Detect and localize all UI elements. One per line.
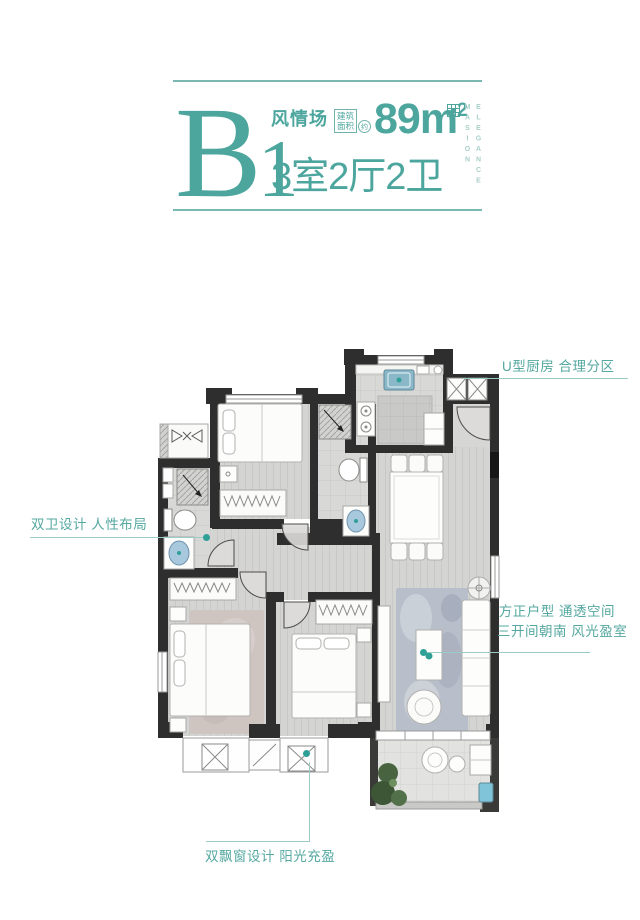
- toilet-1-tank: [164, 509, 172, 531]
- wall-bedroom1-bottom: [212, 519, 284, 529]
- plant: [391, 790, 407, 806]
- balcony-table: [449, 756, 465, 772]
- note-living-line2: 三开间朝南 风光盈室: [497, 622, 615, 642]
- note-bay-window: 双飘窗设计 阳光充盈: [205, 845, 335, 865]
- wall-bath2-left: [310, 404, 318, 519]
- annotation-hline-bay: [206, 841, 310, 842]
- wall-bath1-right: [210, 458, 220, 528]
- floor-plan: [0, 0, 640, 920]
- annotation-vline-bay: [309, 762, 310, 841]
- laundry-basin: [479, 783, 493, 802]
- dining-chair: [409, 543, 425, 560]
- note-bathroom: 双卫设计 人性布局: [31, 513, 147, 533]
- toilet-1: [174, 510, 196, 530]
- nightstand-master-1: [170, 607, 186, 621]
- dining-chair: [409, 455, 425, 472]
- nightstand-1: [220, 466, 237, 482]
- dining-chair: [427, 543, 443, 560]
- note-living: 方正户型 通透空间 三开间朝南 风光盈室: [497, 602, 615, 642]
- annotation-line-kitchen: [462, 378, 628, 379]
- dining-chair: [391, 543, 407, 560]
- dining-table: [390, 472, 443, 543]
- nightstand-2b: [357, 703, 371, 717]
- dining-chair: [391, 455, 407, 472]
- shower-1: [177, 469, 208, 505]
- tv-cabinet: [378, 606, 390, 702]
- annotation-line-bathroom: [30, 537, 204, 538]
- wall-master-bedroom2-divider: [266, 596, 276, 738]
- lounge-chair: [407, 690, 441, 724]
- balcony-railing: [376, 802, 482, 809]
- nightstand-2a: [357, 628, 371, 642]
- floorplan-poster: B1 风情场 建筑 面积 约 89m2 3室2厅2卫 MASION ELEGAN…: [0, 0, 640, 920]
- nightstand-master-2: [170, 718, 186, 732]
- annotation-dot-living: [420, 649, 427, 656]
- dining-chair: [427, 455, 443, 472]
- annotation-dot-bay: [303, 750, 310, 757]
- note-living-line1: 方正户型 通透空间: [497, 602, 615, 622]
- note-kitchen: U型厨房 合理分区: [502, 355, 615, 375]
- dining: [390, 455, 443, 560]
- toilet-2: [339, 459, 359, 481]
- balcony-chair: [422, 747, 448, 773]
- annotation-line-living: [425, 652, 590, 653]
- annotation-dot-bathroom: [203, 534, 210, 541]
- stove: [357, 402, 375, 436]
- toilet-2-tank: [360, 458, 367, 482]
